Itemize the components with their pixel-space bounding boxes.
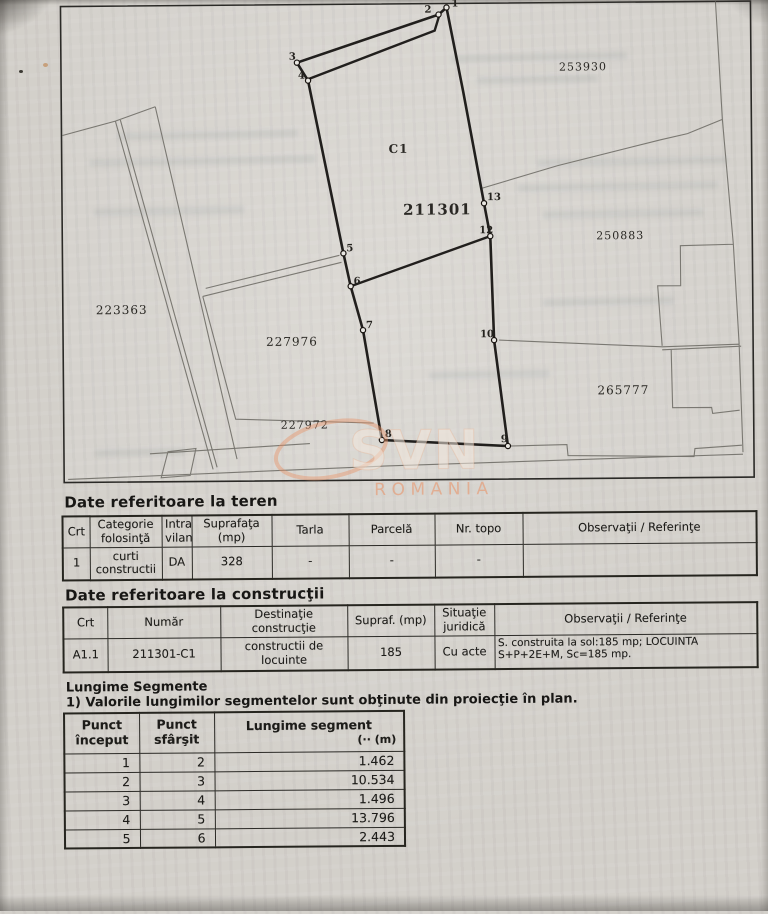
teren-header-parcela: Parcelă — [348, 514, 434, 546]
point-label-7: 7 — [366, 320, 373, 331]
parcel-number-250883: 250883 — [596, 229, 644, 242]
parcel-number-253930: 253930 — [559, 60, 607, 73]
vertex-dot-13 — [481, 201, 486, 206]
point-label-9: 9 — [501, 434, 508, 445]
teren-header-intravilan: Intra vilan — [161, 516, 191, 547]
point-label-5: 5 — [346, 243, 353, 254]
segmente-header-unit: (·· (m) — [218, 733, 401, 748]
point-label-3: 3 — [289, 52, 296, 63]
vertex-dot-4 — [305, 78, 310, 83]
watermark-brand: SVN — [349, 418, 481, 482]
teren-section-title: Date referitoare la teren — [64, 492, 278, 512]
segment-length: 1.462 — [214, 751, 404, 771]
segment-length: 2.443 — [215, 827, 405, 847]
segment-length: 1.496 — [215, 789, 405, 809]
constructii-cell-supraf: 185 — [347, 636, 434, 671]
paper-speck — [19, 70, 23, 73]
constructii-cell-destinatie: constructii de locuinte — [220, 636, 347, 671]
teren-header-observatii: Observaţii / Referinţe — [522, 511, 756, 544]
segmente-table: Punct început Punct sfârşit Lungime segm… — [63, 710, 406, 850]
point-label-10: 10 — [480, 329, 494, 340]
segmente-header-punct-sfarsit: Punct sfârşit — [139, 712, 214, 753]
teren-table: Crt Categorie folosinţă Intra vilan Supr… — [61, 510, 757, 581]
segment-length: 10.534 — [214, 770, 404, 790]
teren-header-tarla: Tarla — [271, 514, 348, 546]
segment-end: 4 — [140, 790, 215, 810]
segmente-section-title: Lungime Segmente — [66, 679, 208, 695]
segment-start: 3 — [65, 791, 140, 811]
paper-speck-orange — [43, 63, 48, 67]
segment-start: 2 — [64, 772, 139, 792]
vertex-dot-2 — [436, 12, 441, 17]
teren-header-suprafata: Suprafaţa (mp) — [191, 515, 271, 547]
segment-length: 13.796 — [215, 808, 405, 828]
segment-end: 5 — [140, 809, 215, 829]
teren-cell-nrtopo: - — [435, 544, 523, 578]
teren-data-row: 1 curti constructii DA 328 - - - — [63, 542, 757, 580]
point-label-6: 6 — [354, 276, 361, 287]
scan-shadow-top-edge — [0, 0, 768, 5]
teren-cell-parcela: - — [349, 545, 435, 579]
teren-cell-suprafata: 328 — [192, 546, 272, 580]
point-label-13: 13 — [487, 192, 501, 203]
segmente-header-punct-inceput: Punct început — [64, 713, 139, 754]
segmente-note: 1) Valorile lungimilor segmentelor sunt … — [66, 691, 578, 710]
segment-end: 2 — [139, 752, 214, 772]
segmente-row-5: 5 6 2.443 — [65, 827, 405, 849]
point-label-2: 2 — [424, 5, 431, 16]
constructii-header-crt: Crt — [63, 607, 107, 638]
segmente-header-row: Punct început Punct sfârşit Lungime segm… — [64, 711, 404, 754]
teren-cell-categorie: curti constructii — [90, 547, 162, 581]
constructii-cell-crt: A1.1 — [63, 638, 107, 672]
plan-frame — [60, 1, 754, 482]
constructii-table: Crt Număr Destinaţie construcţie Supraf.… — [62, 601, 759, 673]
segment-end: 3 — [139, 771, 214, 791]
teren-cell-intravilan: DA — [162, 547, 192, 580]
constructii-header-supraf: Supraf. (mp) — [347, 605, 434, 637]
parcel-number-227976: 227976 — [266, 335, 318, 349]
constructii-cell-numar: 211301-C1 — [107, 637, 220, 672]
segment-end: 6 — [140, 828, 215, 848]
scan-shadow-right-edge — [760, 0, 768, 911]
cadastral-plan: 1 2 3 4 5 6 7 8 9 10 12 13 253930 C1 211… — [0, 0, 768, 503]
constructii-header-situatie: Situaţie juridică — [434, 604, 494, 635]
teren-cell-tarla: - — [272, 545, 349, 579]
vertex-dot-1 — [444, 5, 449, 10]
teren-header-categorie: Categorie folosinţă — [89, 516, 161, 548]
constructii-header-destinatie: Destinaţie construcţie — [220, 605, 347, 637]
point-label-12: 12 — [479, 225, 493, 236]
segmente-header-lungime: Lungime segment (·· (m) — [214, 711, 404, 752]
teren-cell-observatii — [523, 542, 757, 577]
point-label-4: 4 — [298, 71, 305, 82]
constructii-section-title: Date referitoare la construcţii — [65, 584, 325, 604]
constructii-cell-observatii: S. construita la sol:185 mp; LOCUINTA S+… — [494, 633, 757, 669]
segment-start: 5 — [65, 829, 140, 849]
scanned-document-sheet: 1 2 3 4 5 6 7 8 9 10 12 13 253930 C1 211… — [0, 0, 768, 914]
constructii-cell-situatie: Cu acte — [434, 635, 494, 669]
watermark-country: ROMANIA — [374, 479, 494, 500]
parcel-number-223363: 223363 — [96, 303, 148, 317]
constructii-header-observatii: Observaţii / Referinţe — [494, 602, 757, 635]
teren-cell-crt: 1 — [63, 547, 90, 580]
parcel-number-211301: 211301 — [403, 200, 472, 219]
segment-start: 1 — [64, 753, 139, 773]
teren-header-nrtopo: Nr. topo — [434, 513, 522, 545]
scan-shadow-left-edge — [0, 0, 9, 911]
vertex-dot-6 — [348, 284, 353, 289]
teren-header-crt: Crt — [62, 516, 89, 547]
building-label-c1: C1 — [389, 142, 409, 156]
parcel-number-265777: 265777 — [597, 383, 649, 397]
segmente-header-lungime-label: Lungime segment — [218, 715, 401, 733]
constructii-data-row: A1.1 211301-C1 constructii de locuinte 1… — [63, 633, 757, 672]
vertex-dot-5 — [341, 251, 346, 256]
constructii-header-numar: Număr — [107, 606, 220, 638]
scan-shadow-bottom-edge — [0, 895, 768, 911]
segment-start: 4 — [65, 810, 140, 830]
vertex-dot-7 — [360, 328, 365, 333]
